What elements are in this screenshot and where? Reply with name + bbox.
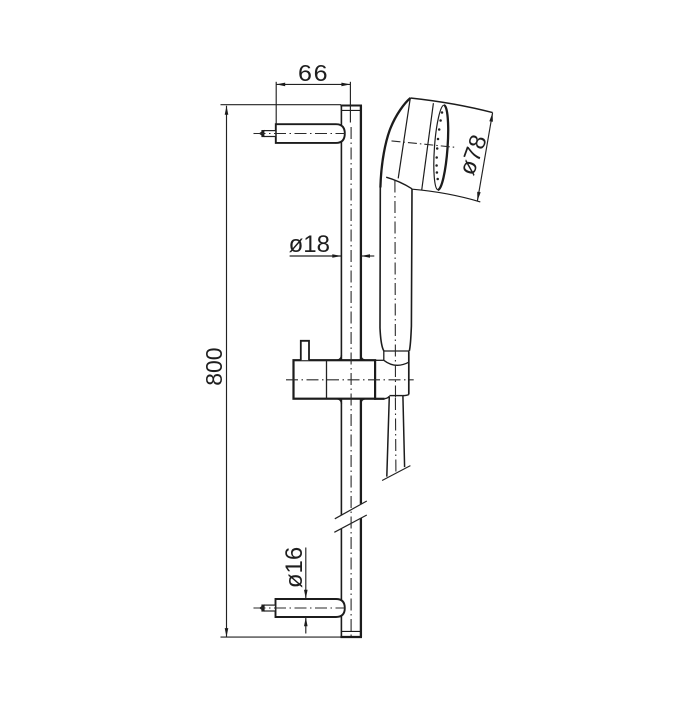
svg-text:ø18: ø18	[289, 231, 330, 258]
svg-text:66: 66	[298, 61, 329, 87]
svg-text:800: 800	[201, 347, 227, 385]
svg-text:ø16: ø16	[281, 547, 308, 588]
